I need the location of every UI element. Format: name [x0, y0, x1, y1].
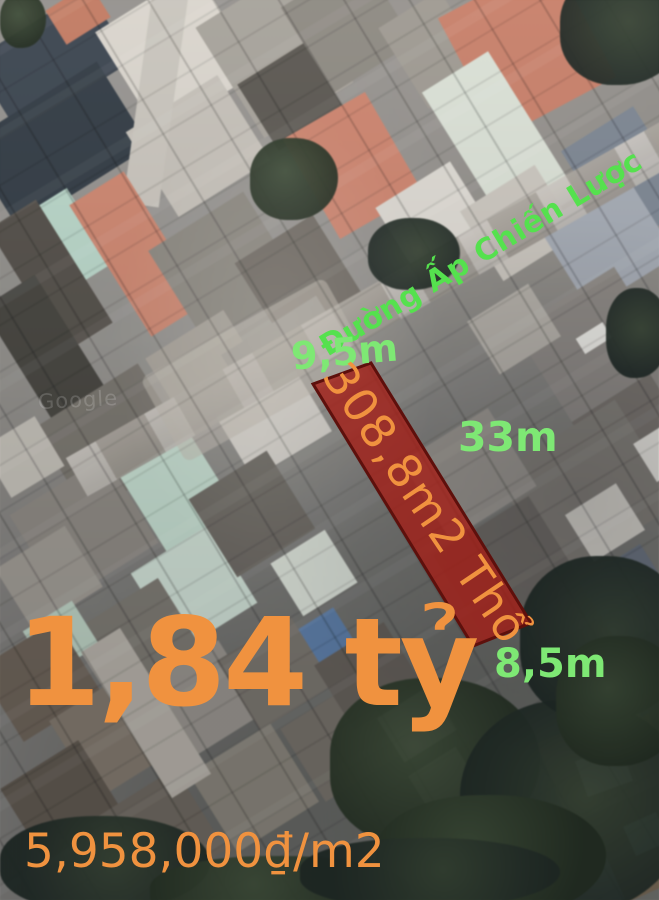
dimension-side-label: 33m: [458, 413, 558, 461]
plot-highlight-svg: [0, 0, 659, 900]
price-total-label: 1,84 tỷ: [16, 592, 476, 734]
google-watermark: Google: [37, 386, 118, 414]
price-per-m2-label: 5,958,000₫/m2: [24, 824, 385, 879]
listing-flyer: Google Đường Ấp Chiến Lược 9,5m 33m 8,5m…: [0, 0, 659, 900]
